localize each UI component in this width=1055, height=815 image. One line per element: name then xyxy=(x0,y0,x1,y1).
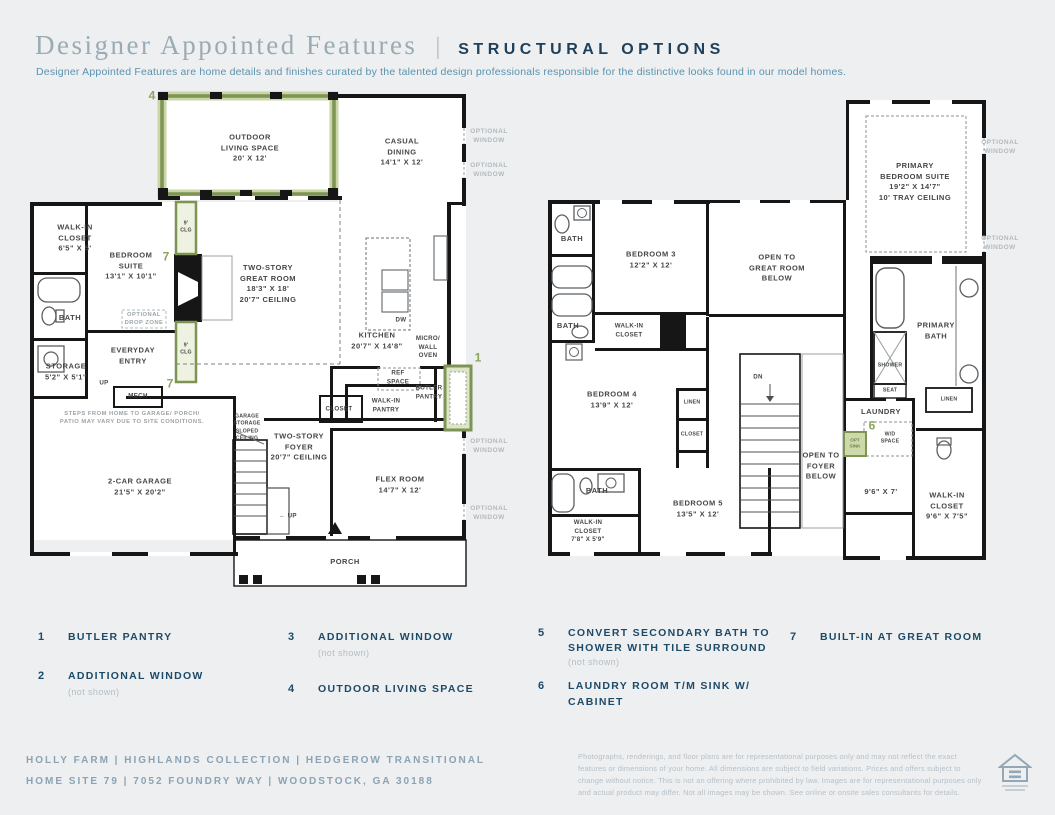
room-label-walk-in-closet-bed3: WALK-IN CLOSET xyxy=(615,322,644,339)
option-note: (not shown) xyxy=(568,657,776,667)
note-steps-vary: STEPS FROM HOME TO GARAGE/ PORCH/ PATIO … xyxy=(60,410,204,426)
optional-window-label: OPTIONAL WINDOW xyxy=(470,161,508,179)
label-closet-bed4: CLOSET xyxy=(681,431,703,438)
option-item-7: 7 BUILT-IN AT GREAT ROOM xyxy=(790,630,1028,645)
room-label-casual-dining: CASUAL DINING 14'1" X 12' xyxy=(381,136,424,168)
label-linen-bed4: LINEN xyxy=(684,399,701,406)
room-label-storage: STORAGE 5'2" X 5'1" xyxy=(45,362,87,383)
room-label-butler-pantry: BUTLER PANTRY xyxy=(416,384,443,401)
header-subtitle: Designer Appointed Features are home det… xyxy=(36,66,846,78)
room-label-bedroom-3: BEDROOM 3 12'2" X 12' xyxy=(626,250,676,271)
label-open-to-great-room: OPEN TO GREAT ROOM BELOW xyxy=(749,252,805,284)
option-label: ADDITIONAL WINDOW xyxy=(318,630,454,645)
footer-address-line: HOME SITE 79 | 7052 FOUNDRY WAY | WOODST… xyxy=(26,776,434,787)
room-label-wic-primary: WALK-IN CLOSET 9'6" X 7'5" xyxy=(926,490,968,522)
first-floor-walls-graphic xyxy=(30,88,530,600)
optional-window-label: OPTIONAL WINDOW xyxy=(981,234,1019,252)
room-label-bedroom-4: BEDROOM 4 13'9" X 12' xyxy=(587,390,637,411)
label-shower: SHOWER xyxy=(878,362,903,369)
option-label: BUILT-IN AT GREAT ROOM xyxy=(820,630,982,645)
room-label-porch: PORCH xyxy=(330,557,360,568)
label-up-stairs-foyer: ← UP xyxy=(279,513,297,522)
label-laundry-dims: 9'6" X 7' xyxy=(864,487,897,498)
room-label-primary-suite: PRIMARY BEDROOM SUITE 19'2" X 14'7" 10' … xyxy=(879,161,951,203)
label-dishwasher: DW xyxy=(396,317,407,326)
label-seat: SEAT xyxy=(883,387,897,394)
footer-community-line: HOLLY FARM | HIGHLANDS COLLECTION | HEDG… xyxy=(26,755,485,766)
room-label-primary-bath: PRIMARY BATH xyxy=(917,321,955,342)
equal-housing-logo xyxy=(998,753,1032,802)
room-label-walk-in-pantry: WALK-IN PANTRY xyxy=(372,397,401,414)
second-floor-walls-graphic xyxy=(540,88,1040,600)
room-label-bedroom-5: BEDROOM 5 13'5" X 12' xyxy=(673,499,723,520)
option-note: (not shown) xyxy=(318,648,454,658)
optional-window-label: OPTIONAL WINDOW xyxy=(470,504,508,522)
option-number: 2 xyxy=(38,669,68,697)
room-label-laundry: LAUNDRY xyxy=(861,407,901,418)
option-marker-laundry-sink: 6 xyxy=(869,418,876,435)
option-note: (not shown) xyxy=(68,687,204,697)
flyer-page: Designer Appointed Features | STRUCTURAL… xyxy=(0,0,1055,815)
option-label: ADDITIONAL WINDOW xyxy=(68,669,204,684)
room-label-closet: CLOSET xyxy=(326,406,353,415)
ceiling-label-9clg: 9' CLG xyxy=(180,343,192,358)
option-item-4: 4 OUTDOOR LIVING SPACE xyxy=(288,682,526,697)
room-label-wic-bed5: WALK-IN CLOSET 7'8" X 5'9" xyxy=(571,519,604,545)
options-column-4: 7 BUILT-IN AT GREAT ROOM xyxy=(790,630,1028,669)
label-dn-stairs: DN xyxy=(753,374,763,383)
option-item-6: 6 LAUNDRY ROOM T/M SINK W/ CABINET xyxy=(538,679,776,709)
option-marker-outdoor-living: 4 xyxy=(149,88,156,105)
options-column-2: 3 ADDITIONAL WINDOW (not shown) 4 OUTDOO… xyxy=(288,630,526,721)
page-title-serif: Designer Appointed Features xyxy=(35,30,417,61)
equal-housing-icon xyxy=(998,753,1032,797)
option-label: OUTDOOR LIVING SPACE xyxy=(318,682,474,697)
room-label-mech: MECH xyxy=(128,393,147,402)
page-title-caps: STRUCTURAL OPTIONS xyxy=(458,41,724,59)
room-label-foyer: TWO-STORY FOYER 20'7" CEILING xyxy=(271,431,328,463)
label-wd-space: W/D SPACE xyxy=(881,432,900,447)
option-label: BUTLER PANTRY xyxy=(68,630,172,645)
label-optional-drop-zone: OPTIONAL DROP ZONE xyxy=(125,311,164,327)
label-linen-primary: LINEN xyxy=(941,396,958,403)
room-label-bath-1: BATH xyxy=(561,234,583,245)
room-label-walk-in-closet: WALK-IN CLOSET 6'5" X 5' xyxy=(57,222,93,254)
room-label-garage: 2-CAR GARAGE 21'5" X 20'2" xyxy=(108,477,172,498)
option-label: LAUNDRY ROOM T/M SINK W/ CABINET xyxy=(568,679,776,709)
room-label-kitchen: KITCHEN 20'7" X 14'8" xyxy=(351,331,402,352)
option-number: 4 xyxy=(288,682,318,697)
label-open-to-foyer: OPEN TO FOYER BELOW xyxy=(802,450,839,482)
label-garage-storage: GARAGE STORAGE SLOPED CEILING xyxy=(234,413,261,442)
option-number: 6 xyxy=(538,679,568,709)
option-item-5: 5 CONVERT SECONDARY BATH TO SHOWER WITH … xyxy=(538,626,776,667)
label-opt-sink: OPT SINK xyxy=(850,438,861,451)
options-column-1: 1 BUTLER PANTRY 2 ADDITIONAL WINDOW (not… xyxy=(38,630,276,721)
option-number: 1 xyxy=(38,630,68,645)
label-up-stairs: UP xyxy=(99,380,108,389)
header: Designer Appointed Features | STRUCTURAL… xyxy=(35,30,725,61)
room-label-flex-room: FLEX ROOM 14'7" X 12' xyxy=(375,475,424,496)
room-label-everyday-entry: EVERYDAY ENTRY xyxy=(111,346,155,367)
room-label-bath-2: BATH xyxy=(557,321,579,332)
room-label-bath: BATH xyxy=(59,313,81,324)
option-item-3: 3 ADDITIONAL WINDOW (not shown) xyxy=(288,630,526,658)
option-marker-built-in: 7 xyxy=(163,249,170,266)
floorplan-first-floor: 4 OUTDOOR LIVING SPACE 20' X 12' CASUAL … xyxy=(30,88,530,600)
option-item-2: 2 ADDITIONAL WINDOW (not shown) xyxy=(38,669,276,697)
label-ref-space: REF SPACE xyxy=(387,369,409,386)
options-column-3: 5 CONVERT SECONDARY BATH TO SHOWER WITH … xyxy=(538,626,776,734)
room-label-bedroom-suite: BEDROOM SUITE 13'1" X 10'1" xyxy=(105,250,156,282)
optional-window-label: OPTIONAL WINDOW xyxy=(470,437,508,455)
option-number: 5 xyxy=(538,626,568,667)
room-label-bath-3: BATH xyxy=(586,486,608,497)
optional-window-label: OPTIONAL WINDOW xyxy=(981,138,1019,156)
option-marker-butler-pantry: 1 xyxy=(475,350,482,367)
room-label-great-room: TWO-STORY GREAT ROOM 18'3" X 18' 20'7" C… xyxy=(240,263,297,305)
floorplan-second-floor: PRIMARY BEDROOM SUITE 19'2" X 14'7" 10' … xyxy=(540,88,1040,600)
option-label: CONVERT SECONDARY BATH TO SHOWER WITH TI… xyxy=(568,626,776,656)
option-number: 7 xyxy=(790,630,820,645)
option-marker-built-in: 7 xyxy=(167,376,174,393)
option-item-1: 1 BUTLER PANTRY xyxy=(38,630,276,645)
option-number: 3 xyxy=(288,630,318,658)
title-divider: | xyxy=(435,34,440,61)
optional-window-label: OPTIONAL WINDOW xyxy=(470,127,508,145)
footer-disclaimer: Photographs, renderings, and floor plans… xyxy=(578,751,986,799)
room-label-outdoor-living: OUTDOOR LIVING SPACE 20' X 12' xyxy=(221,132,279,164)
ceiling-label-9clg: 9' CLG xyxy=(180,221,192,236)
label-micro-wall-oven: MICRO/ WALL OVEN xyxy=(416,335,440,361)
